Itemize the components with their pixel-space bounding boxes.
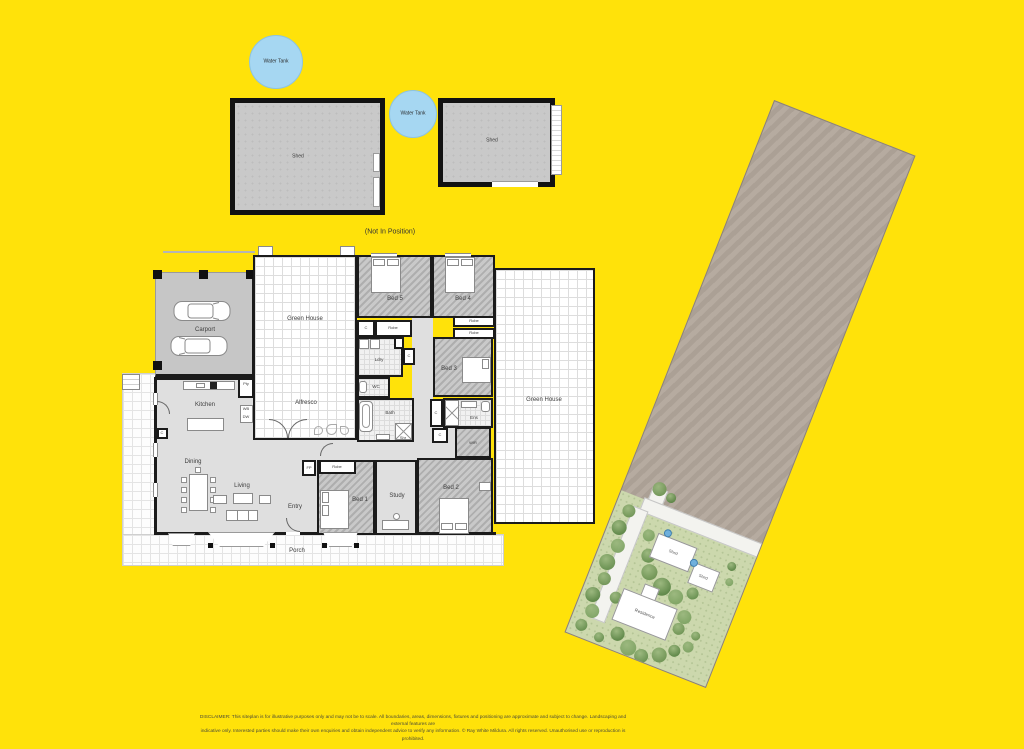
disclaimer: DISCLAIMER: This siteplan is for illustr… bbox=[195, 714, 631, 743]
room-label-bed5: Bed 5 bbox=[387, 296, 403, 302]
shed-left-label: Shed bbox=[292, 155, 304, 160]
closet-label: C bbox=[439, 433, 442, 437]
robe-label: Robe bbox=[332, 465, 342, 469]
shed-left-door-icon bbox=[373, 153, 380, 172]
chair-icon bbox=[210, 507, 216, 513]
greenhouse-right bbox=[494, 268, 595, 524]
pillow-icon bbox=[482, 359, 489, 369]
trough-icon bbox=[370, 339, 380, 349]
tree-icon bbox=[665, 491, 678, 504]
dining-table-icon bbox=[189, 474, 208, 511]
not-in-position-note: (Not In Position) bbox=[365, 229, 415, 236]
chair-icon bbox=[210, 477, 216, 483]
water-tank-2-label: Water Tank bbox=[400, 112, 425, 117]
robe-label: Robe bbox=[388, 326, 398, 330]
pillow-icon bbox=[461, 259, 473, 266]
chair-icon bbox=[195, 467, 201, 473]
vanity-icon bbox=[376, 434, 390, 440]
room-label-wc: WC bbox=[372, 385, 380, 390]
chair-icon bbox=[181, 497, 187, 503]
car-icon bbox=[173, 300, 231, 322]
fence-line bbox=[163, 251, 255, 253]
side-table-icon bbox=[259, 495, 271, 504]
shed-left-door2-icon bbox=[373, 177, 380, 207]
room-label-bed3: Bed 3 bbox=[441, 366, 457, 372]
room-label-greenhouse-right: Green House bbox=[526, 397, 562, 403]
closet-label: C bbox=[408, 354, 411, 358]
pillow-icon bbox=[441, 523, 453, 530]
toilet-icon bbox=[359, 381, 367, 393]
shed-right-roller-door-icon bbox=[551, 105, 562, 175]
pillow-icon bbox=[455, 523, 467, 530]
window-icon bbox=[445, 253, 471, 257]
pillow-icon bbox=[373, 259, 385, 266]
pillow-icon bbox=[447, 259, 459, 266]
room-label-bed2: Bed 2 bbox=[443, 485, 459, 491]
dresser-icon bbox=[479, 482, 491, 491]
disclaimer-line2: indicative only. Interested parties shou… bbox=[201, 729, 626, 741]
closet-label: C bbox=[161, 431, 164, 435]
shower-icon bbox=[445, 400, 459, 426]
room-label-dining: Dining bbox=[184, 459, 201, 465]
robe-label: Robe bbox=[469, 331, 479, 335]
toilet-icon bbox=[481, 401, 490, 412]
floorplan: Carport Green House Alfresco Bed 5 Bed 4 bbox=[118, 243, 600, 565]
siteplan-strip: Shed Shed Residence bbox=[564, 100, 915, 688]
dw-label: DW bbox=[243, 415, 250, 419]
wb-label: WB bbox=[243, 407, 249, 411]
sofa-icon bbox=[226, 510, 258, 521]
steps-icon bbox=[122, 374, 140, 390]
tree-layer bbox=[775, 101, 915, 156]
room-label-bath: Bath bbox=[385, 411, 394, 416]
room-label-kitchen: Kitchen bbox=[195, 402, 215, 408]
chair-icon bbox=[181, 507, 187, 513]
fireplace-label: FP bbox=[306, 466, 311, 470]
disclaimer-line1: DISCLAIMER: This siteplan is for illustr… bbox=[200, 715, 626, 727]
room-label-ldry: Ldry bbox=[375, 358, 384, 363]
shed-left bbox=[230, 98, 385, 215]
carport-post bbox=[153, 270, 162, 279]
siteplan-canvas: Water Tank Shed Water Tank Shed (Not In … bbox=[0, 0, 1024, 749]
pillow-icon bbox=[322, 492, 329, 503]
room-label-porch: Porch bbox=[289, 548, 305, 554]
chair-icon bbox=[181, 487, 187, 493]
chair-icon bbox=[210, 487, 216, 493]
washer-icon bbox=[359, 339, 369, 349]
chair-icon bbox=[181, 477, 187, 483]
car-icon bbox=[170, 335, 228, 357]
porch-post bbox=[322, 543, 327, 548]
carport-post bbox=[153, 361, 162, 370]
shed-right-label: Shed bbox=[486, 139, 498, 144]
room-label-entry: Entry bbox=[288, 504, 302, 510]
closet-label: C bbox=[435, 411, 438, 415]
front-door-gap bbox=[286, 532, 300, 535]
window-icon bbox=[371, 253, 397, 257]
bathtub-basin-icon bbox=[362, 404, 370, 428]
room-label-living: Living bbox=[234, 483, 250, 489]
island-bench-icon bbox=[187, 418, 224, 431]
coffee-table-icon bbox=[233, 493, 253, 504]
window-icon bbox=[153, 443, 158, 457]
closet-label: C bbox=[365, 326, 368, 330]
pillow-icon bbox=[322, 505, 329, 516]
room-label-carport: Carport bbox=[195, 327, 215, 333]
room-label-wir: WIR bbox=[469, 441, 477, 445]
carport-post bbox=[199, 270, 208, 279]
plant-icon bbox=[340, 426, 349, 435]
pillow-icon bbox=[387, 259, 399, 266]
room-label-alfresco: Alfresco bbox=[295, 400, 317, 406]
stove-icon bbox=[210, 382, 217, 389]
greenhouse-left bbox=[253, 255, 357, 440]
porch-post bbox=[208, 543, 213, 548]
plant-icon bbox=[314, 426, 323, 435]
carport bbox=[155, 272, 255, 377]
room-label-bed4: Bed 4 bbox=[455, 296, 471, 302]
vanity-icon bbox=[461, 401, 477, 408]
robe-label: Robe bbox=[469, 319, 479, 323]
water-tank-1-label: Water Tank bbox=[263, 60, 288, 65]
porch-post bbox=[354, 543, 359, 548]
room-label-study: Study bbox=[389, 493, 404, 499]
room-label-ens: Ens bbox=[470, 416, 478, 421]
shed-right-opening-icon bbox=[492, 181, 538, 187]
sink-icon bbox=[196, 383, 205, 388]
porch-post bbox=[270, 543, 275, 548]
plant-icon bbox=[326, 424, 337, 435]
chair-icon bbox=[393, 513, 400, 520]
pantry-label: Pty bbox=[243, 382, 249, 386]
kitchen-bench-icon bbox=[183, 381, 235, 390]
side-table-icon bbox=[213, 495, 227, 504]
desk-icon bbox=[382, 520, 409, 530]
window-icon bbox=[153, 483, 158, 497]
shower-label: Shr bbox=[400, 436, 406, 440]
room-label-greenhouse: Green House bbox=[287, 316, 323, 322]
room-label-bed1: Bed 1 bbox=[352, 497, 368, 503]
